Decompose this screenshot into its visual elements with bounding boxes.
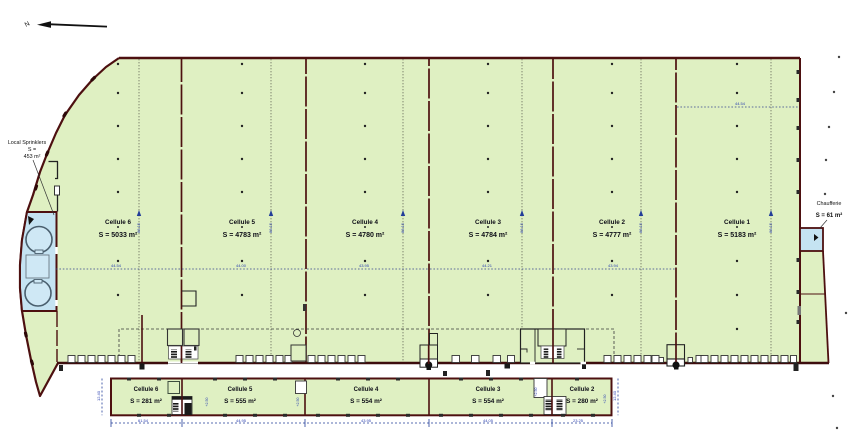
svg-text:44.54: 44.54 xyxy=(735,101,746,106)
svg-text:Cellule 5: Cellule 5 xyxy=(229,219,255,226)
svg-text:43.94: 43.94 xyxy=(608,263,619,268)
svg-text:12.40: 12.40 xyxy=(96,390,101,401)
svg-text:88.15: 88.15 xyxy=(268,222,273,233)
svg-text:453 m²: 453 m² xyxy=(24,154,41,160)
svg-text:61.54: 61.54 xyxy=(138,418,149,423)
svg-text:23.25: 23.25 xyxy=(573,418,584,423)
svg-text:88.15: 88.15 xyxy=(136,222,141,233)
svg-text:S = 5033 m²: S = 5033 m² xyxy=(99,232,138,239)
svg-text:44.00: 44.00 xyxy=(236,263,247,268)
svg-text:Cellule 3: Cellule 3 xyxy=(476,387,501,393)
svg-text:43.95: 43.95 xyxy=(359,263,370,268)
svg-text:Cellule 1: Cellule 1 xyxy=(724,219,750,226)
svg-text:S = 5183 m²: S = 5183 m² xyxy=(718,232,757,239)
svg-text:Cellule 4: Cellule 4 xyxy=(352,219,378,226)
svg-text:S = 4777 m²: S = 4777 m² xyxy=(593,232,632,239)
svg-text:88.15: 88.15 xyxy=(519,222,524,233)
svg-text:44.21: 44.21 xyxy=(482,263,493,268)
svg-text:44.95: 44.95 xyxy=(236,418,247,423)
svg-text:43.95: 43.95 xyxy=(361,418,372,423)
svg-text:Cellule 6: Cellule 6 xyxy=(134,387,159,393)
svg-text:+2.50: +2.50 xyxy=(205,397,209,406)
svg-text:S = 554 m²: S = 554 m² xyxy=(350,398,382,405)
svg-text:Cellule 2: Cellule 2 xyxy=(599,219,625,226)
svg-text:Cellule 5: Cellule 5 xyxy=(228,387,253,393)
svg-text:Cellule 4: Cellule 4 xyxy=(354,387,379,393)
svg-text:S = 555 m²: S = 555 m² xyxy=(224,398,256,405)
svg-text:Cellule 3: Cellule 3 xyxy=(475,219,501,226)
svg-text:Cellule 2: Cellule 2 xyxy=(570,387,595,393)
svg-text:+2.50: +2.50 xyxy=(296,397,300,406)
svg-text:12.40: 12.40 xyxy=(612,390,617,401)
svg-text:S = 4780 m²: S = 4780 m² xyxy=(346,232,385,239)
svg-text:Cellule 6: Cellule 6 xyxy=(105,219,131,226)
svg-text:44.05: 44.05 xyxy=(483,418,494,423)
svg-text:S = 61 m²: S = 61 m² xyxy=(816,212,843,219)
svg-text:44.54: 44.54 xyxy=(111,263,122,268)
svg-text:Chaufferie: Chaufferie xyxy=(817,201,842,207)
svg-text:+2.50: +2.50 xyxy=(534,387,538,396)
svg-text:S = 280 m²: S = 280 m² xyxy=(566,398,598,405)
svg-text:88.15: 88.15 xyxy=(638,222,643,233)
svg-text:Local Sprinklers: Local Sprinklers xyxy=(8,140,47,146)
svg-text:S =: S = xyxy=(28,147,36,153)
svg-text:+2.50: +2.50 xyxy=(603,394,607,403)
svg-text:N: N xyxy=(24,20,32,29)
svg-text:S = 4784 m²: S = 4784 m² xyxy=(469,232,508,239)
svg-text:S = 281 m²: S = 281 m² xyxy=(130,398,162,405)
svg-text:S = 4783 m²: S = 4783 m² xyxy=(223,232,262,239)
svg-text:88.15: 88.15 xyxy=(400,222,405,233)
svg-text:88.15: 88.15 xyxy=(768,222,773,233)
svg-text:S = 554 m²: S = 554 m² xyxy=(472,398,504,405)
